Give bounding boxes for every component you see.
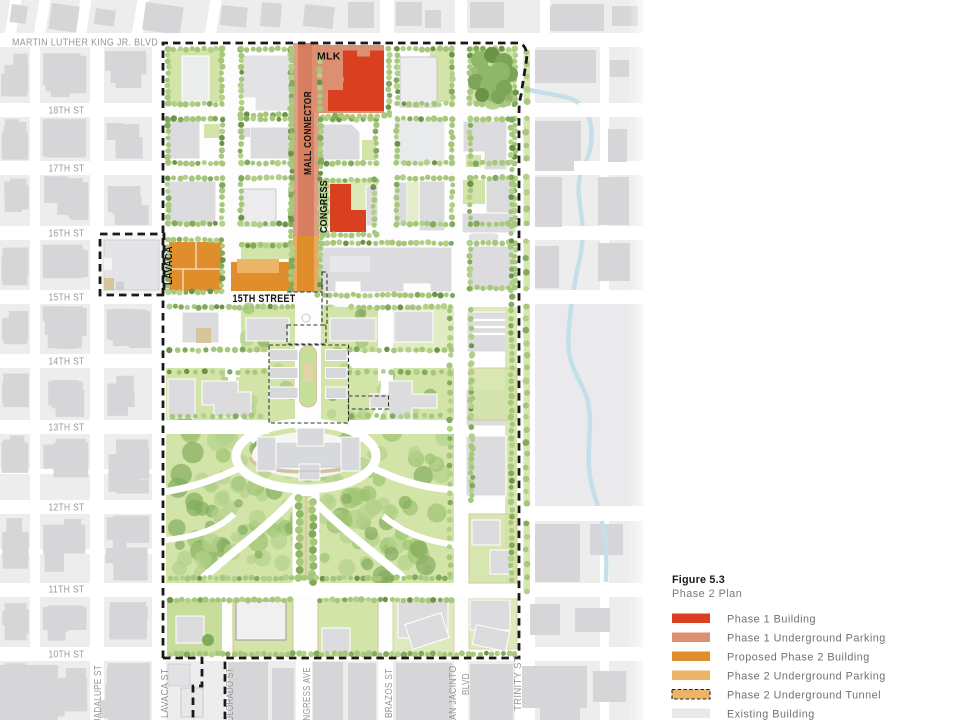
- svg-text:11TH ST: 11TH ST: [49, 585, 85, 596]
- svg-text:Phase 1 Building: Phase 1 Building: [727, 614, 816, 626]
- svg-text:14TH ST: 14TH ST: [49, 357, 85, 368]
- svg-text:BRAZOS ST: BRAZOS ST: [383, 668, 395, 718]
- svg-text:MALL CONNECTOR: MALL CONNECTOR: [303, 91, 314, 175]
- svg-text:TRINITY ST: TRINITY ST: [512, 656, 524, 711]
- svg-text:15TH ST: 15TH ST: [49, 293, 85, 304]
- svg-text:LAVACA ST: LAVACA ST: [159, 668, 171, 718]
- svg-text:COLORADO ST: COLORADO ST: [224, 667, 236, 720]
- svg-text:13TH ST: 13TH ST: [49, 423, 85, 434]
- svg-text:CONGRESS: CONGRESS: [319, 180, 330, 233]
- svg-text:Phase 2 Plan: Phase 2 Plan: [672, 588, 742, 600]
- svg-text:Existing Building: Existing Building: [727, 709, 815, 720]
- svg-text:GUADALUPE ST: GUADALUPE ST: [92, 665, 104, 720]
- svg-text:Figure 5.3: Figure 5.3: [672, 574, 725, 586]
- svg-text:Phase 1 Underground Parking: Phase 1 Underground Parking: [727, 633, 886, 645]
- svg-text:LAVACA: LAVACA: [164, 246, 175, 285]
- svg-text:10TH ST: 10TH ST: [49, 650, 85, 661]
- svg-text:SAN JACINTO: SAN JACINTO: [447, 666, 459, 720]
- svg-text:MLK: MLK: [317, 51, 341, 63]
- svg-text:MARTIN LUTHER KING JR. BLVD: MARTIN LUTHER KING JR. BLVD: [12, 38, 158, 49]
- svg-text:12TH ST: 12TH ST: [49, 503, 85, 514]
- svg-text:17TH ST: 17TH ST: [49, 164, 85, 175]
- svg-text:Phase 2 Underground Tunnel: Phase 2 Underground Tunnel: [727, 690, 881, 702]
- svg-text:16TH ST: 16TH ST: [49, 229, 85, 240]
- svg-text:Proposed Phase 2 Building: Proposed Phase 2 Building: [727, 652, 870, 664]
- svg-text:18TH ST: 18TH ST: [49, 106, 85, 117]
- svg-text:15TH STREET: 15TH STREET: [233, 293, 296, 305]
- svg-text:Phase 2 Underground Parking: Phase 2 Underground Parking: [727, 671, 886, 683]
- svg-text:CONGRESS AVE: CONGRESS AVE: [301, 667, 313, 720]
- svg-text:BLVD: BLVD: [460, 673, 472, 695]
